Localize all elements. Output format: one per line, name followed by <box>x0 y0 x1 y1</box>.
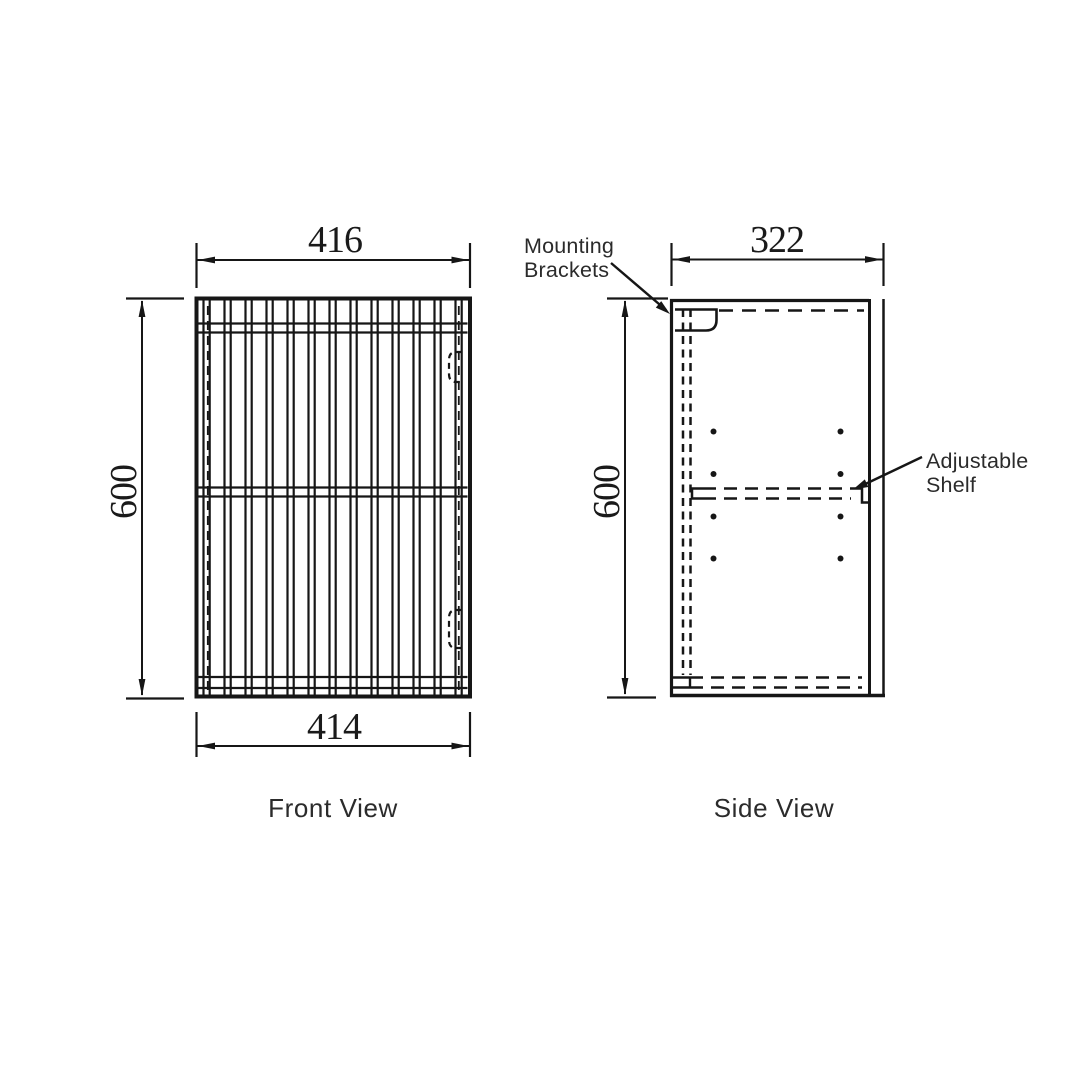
shelf-pin-hole <box>838 429 844 435</box>
arrow-600f-top <box>139 300 146 317</box>
adjustable-shelf-callout: Adjustable Shelf <box>926 449 1028 497</box>
arrow-414-left <box>198 743 215 750</box>
mounting-brackets-label-line2: Brackets <box>524 258 609 282</box>
arrow-shelf-leader <box>853 479 868 489</box>
shelf-pin-hole <box>711 471 717 477</box>
shelf-pin-hole <box>838 471 844 477</box>
cabinet-technical-drawing: 416 414 600 322 600 Mounting Brackets Ad… <box>0 0 1080 1080</box>
arrow-600s-bottom <box>622 678 629 695</box>
dim-front-width-bottom: 414 <box>307 706 362 748</box>
side-view-label: Side View <box>714 793 835 823</box>
cad-linework <box>126 243 922 757</box>
dim-front-width-top: 416 <box>308 219 362 261</box>
arrow-600s-top <box>622 300 629 317</box>
shelf-pin-hole <box>711 556 717 562</box>
mounting-brackets-label-line1: Mounting <box>524 234 614 258</box>
dim-front-height: 600 <box>103 465 145 519</box>
shelf-right-step <box>851 489 869 503</box>
shelf-left-cap <box>692 489 703 499</box>
arrow-416-right <box>452 257 469 264</box>
arrow-416-left <box>198 257 215 264</box>
adjustable-shelf-label-line1: Adjustable <box>926 449 1028 473</box>
dim-side-height: 600 <box>586 465 628 519</box>
shelf-pin-hole <box>711 514 717 520</box>
arrow-414-right <box>452 743 469 750</box>
arrow-322-left <box>673 256 690 263</box>
shelf-pin-hole <box>838 514 844 520</box>
shelf-pin-hole <box>711 429 717 435</box>
dim-side-depth: 322 <box>750 219 804 261</box>
shelf-pin-hole <box>838 556 844 562</box>
mounting-leader-line <box>611 263 666 310</box>
shelf-leader-line <box>857 457 922 488</box>
adjustable-shelf-label-line2: Shelf <box>926 473 976 497</box>
technical-drawing-page: 416 414 600 322 600 Mounting Brackets Ad… <box>0 0 1080 1080</box>
arrow-322-right <box>865 256 882 263</box>
mounting-brackets-callout: Mounting Brackets <box>524 234 614 282</box>
front-view-label: Front View <box>268 793 398 823</box>
mounting-bracket <box>675 310 717 331</box>
arrow-600f-bottom <box>139 679 146 696</box>
